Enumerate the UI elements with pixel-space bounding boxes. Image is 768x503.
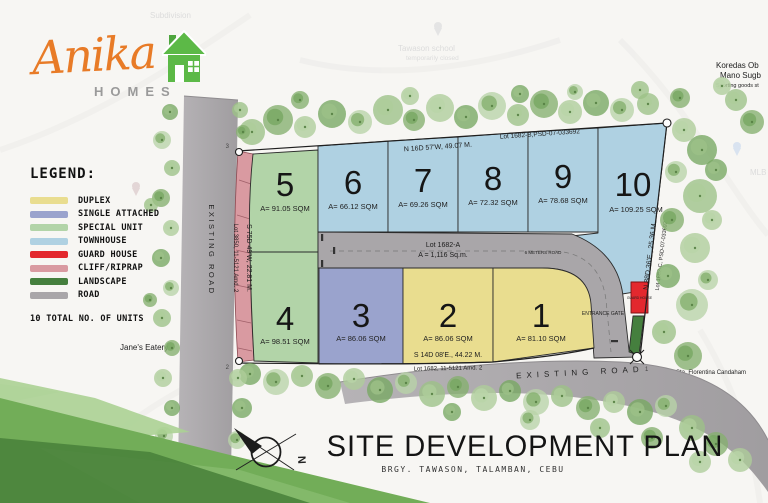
legend-item-road: ROAD <box>30 289 190 303</box>
lot-3-area: A= 86.06 SQM <box>336 334 385 343</box>
boundary-bottom-lot: Lot 1682, 11-5121 Amd. 2 <box>414 365 483 372</box>
road-swatch <box>30 292 68 299</box>
cliff-riprap-swatch <box>30 265 68 272</box>
boundary-left-lot: Lot 3850, 11-5121 Amd. 2 <box>232 224 238 293</box>
bg-label-school-2: temporarily closed <box>406 55 459 62</box>
subdivision-plan: 3 2 1 1 A= 81.10 SQM 2 A= 86.06 SQM 3 A=… <box>226 119 671 373</box>
bg-label-school: Tawason school <box>398 44 455 53</box>
brand-name: Anika <box>31 25 157 85</box>
lot-8-area: A= 72.32 SQM <box>468 198 517 207</box>
special-unit-swatch <box>30 224 68 231</box>
landscape-swatch <box>30 278 68 285</box>
road-lot-name: Lot 1682-A <box>426 242 461 249</box>
legend-panel: LEGEND: DUPLEX SINGLE ATTACHED SPECIAL U… <box>30 166 190 324</box>
title-block: SITE DEVELOPMENT PLAN BRGY. TAWASON, TAL… <box>295 430 755 474</box>
legend-item-guard-house: GUARD HOUSE <box>30 248 190 262</box>
legend-item-townhouse: TOWNHOUSE <box>30 235 190 249</box>
guard-house-label: GUARD HOUSE <box>627 296 653 300</box>
lot-6-area: A= 66.12 SQM <box>328 202 377 211</box>
lot-5-number: 5 <box>276 166 294 203</box>
road-width-note: 6 METERS ROAD <box>525 250 563 255</box>
bg-label-poi-1: Koredas Ob <box>716 61 759 70</box>
lot-2-number: 2 <box>439 297 457 334</box>
bg-label-subdivision: Subdivision <box>150 11 191 20</box>
legend-item-cliff-riprap: CLIFF/RIPRAP <box>30 262 190 276</box>
single-attached-swatch <box>30 211 68 218</box>
legend-item-single-attached: SINGLE ATTACHED <box>30 208 190 222</box>
lot-1-area: A= 81.10 SQM <box>516 334 565 343</box>
lot-3-number: 3 <box>352 297 370 334</box>
page-title: SITE DEVELOPMENT PLAN <box>302 430 748 464</box>
lot-9-area: A= 78.68 SQM <box>538 196 587 205</box>
legend-title: LEGEND: <box>30 166 190 182</box>
duplex-swatch <box>30 197 68 204</box>
brand-sub: HOMES <box>94 84 177 99</box>
lot-9-number: 9 <box>554 158 572 195</box>
entrance-gate-label: ENTRANCE GATE <box>582 311 625 317</box>
guard-house-swatch <box>30 251 68 258</box>
total-units-note: 10 TOTAL NO. OF UNITS <box>30 314 190 324</box>
boundary-left-bearing: S 75D 49'W, 22.81 M. <box>245 224 252 292</box>
lot-4-area: A= 98.51 SQM <box>260 337 309 346</box>
lot-10-number: 10 <box>615 166 652 203</box>
lot-2-area: A= 86.06 SQM <box>423 334 472 343</box>
lot-8-number: 8 <box>484 160 502 197</box>
lot-5-area: A= 91.05 SQM <box>260 204 309 213</box>
house-icon <box>162 30 206 84</box>
legend-item-landscape: LANDSCAPE <box>30 275 190 289</box>
landscape-strip <box>629 316 644 355</box>
road-lot-area: A = 1,116 Sq.m. <box>418 252 468 259</box>
bg-label-mlb: MLB <box>750 168 766 177</box>
site-development-plan-page: Subdivision Tawason school temporarily c… <box>0 0 768 503</box>
lot-10-area: A= 109.25 SQM <box>609 205 663 214</box>
lot-4-number: 4 <box>276 300 294 337</box>
page-subtitle: BRGY. TAWASON, TALAMBAN, CEBU <box>243 465 703 474</box>
townhouse-swatch <box>30 238 68 245</box>
legend-item-special-unit: SPECIAL UNIT <box>30 221 190 235</box>
lot-7-area: A= 69.26 SQM <box>398 200 447 209</box>
lot-6-number: 6 <box>344 164 362 201</box>
bg-label-eatery: Jane's Eatery <box>120 343 168 352</box>
lot-7-number: 7 <box>414 162 432 199</box>
boundary-bottom-bearing: S 14D 08'E., 44.22 M. <box>414 352 482 359</box>
existing-road-left-label: EXISTING ROAD <box>207 204 216 295</box>
legend-item-duplex: DUPLEX <box>30 194 190 208</box>
brand-logo: Anika HOMES <box>28 26 213 106</box>
lot-1-number: 1 <box>532 297 550 334</box>
